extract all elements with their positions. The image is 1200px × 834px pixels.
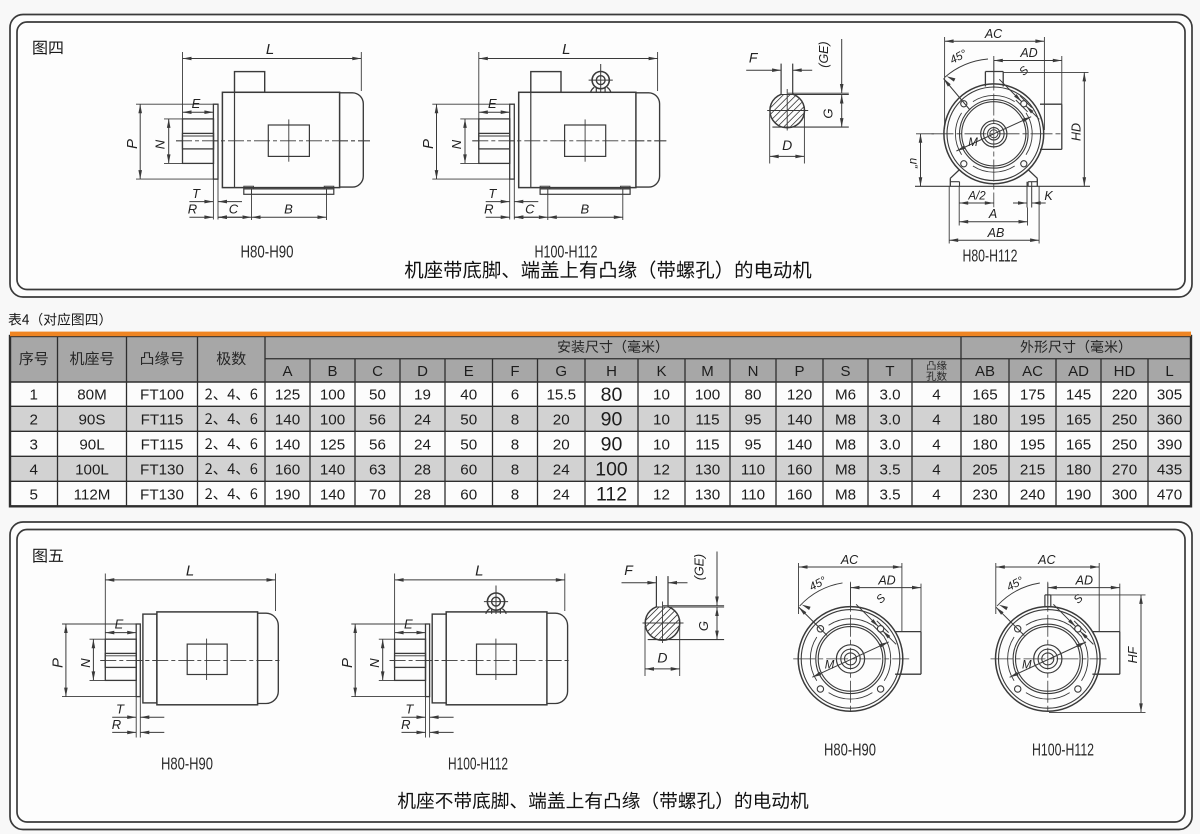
svg-text:110: 110 <box>741 461 765 478</box>
svg-text:115: 115 <box>695 411 719 428</box>
svg-text:115: 115 <box>695 436 719 453</box>
svg-text:AD: AD <box>1075 574 1093 588</box>
svg-text:100: 100 <box>695 387 720 404</box>
svg-text:205: 205 <box>972 461 997 478</box>
svg-text:P: P <box>794 363 804 380</box>
svg-text:M: M <box>968 137 978 149</box>
svg-text:M: M <box>825 659 835 671</box>
svg-text:1: 1 <box>30 387 38 404</box>
svg-text:140: 140 <box>787 436 812 453</box>
svg-text:250: 250 <box>1112 411 1137 428</box>
svg-text:24: 24 <box>414 411 431 428</box>
svg-text:HF: HF <box>1126 645 1140 663</box>
svg-text:215: 215 <box>1020 461 1045 478</box>
svg-text:FT115: FT115 <box>141 436 184 453</box>
svg-text:AC: AC <box>1037 553 1056 567</box>
svg-text:40: 40 <box>460 387 477 404</box>
svg-text:160: 160 <box>787 486 812 503</box>
svg-text:G: G <box>555 363 567 380</box>
svg-text:D: D <box>417 363 428 380</box>
svg-text:24: 24 <box>414 436 431 453</box>
svg-text:2: 2 <box>30 411 38 428</box>
svg-text:8: 8 <box>511 486 519 503</box>
svg-text:112M: 112M <box>74 486 111 503</box>
svg-text:A: A <box>282 363 292 380</box>
svg-text:270: 270 <box>1112 461 1137 478</box>
svg-text:390: 390 <box>1157 436 1182 453</box>
svg-text:B: B <box>327 363 337 380</box>
svg-text:130: 130 <box>695 486 720 503</box>
svg-text:K: K <box>1044 189 1053 203</box>
svg-text:160: 160 <box>275 461 300 478</box>
svg-text:90: 90 <box>601 434 623 456</box>
svg-text:80: 80 <box>745 387 762 404</box>
svg-text:4: 4 <box>932 486 940 503</box>
svg-text:190: 190 <box>1066 486 1091 503</box>
svg-text:3.0: 3.0 <box>879 387 900 404</box>
svg-text:28: 28 <box>414 461 431 478</box>
svg-text:50: 50 <box>460 436 477 453</box>
svg-text:24: 24 <box>553 486 570 503</box>
svg-text:12: 12 <box>653 486 670 503</box>
svg-text:M: M <box>701 363 714 380</box>
svg-text:70: 70 <box>369 486 386 503</box>
svg-text:180: 180 <box>972 436 997 453</box>
svg-text:10: 10 <box>653 387 670 404</box>
svg-text:220: 220 <box>1112 387 1137 404</box>
svg-text:H80-H90: H80-H90 <box>161 754 213 774</box>
svg-text:H80-H90: H80-H90 <box>241 242 294 262</box>
svg-text:63: 63 <box>369 461 386 478</box>
svg-text:C: C <box>372 363 383 380</box>
svg-text:H100-H112: H100-H112 <box>535 242 598 262</box>
svg-text:3: 3 <box>30 436 38 453</box>
svg-text:H100-H112: H100-H112 <box>1032 740 1094 760</box>
svg-text:195: 195 <box>1020 411 1045 428</box>
svg-text:20: 20 <box>553 411 570 428</box>
svg-text:AC: AC <box>1022 363 1043 380</box>
svg-text:28: 28 <box>414 486 431 503</box>
svg-text:120: 120 <box>787 387 812 404</box>
svg-text:19: 19 <box>414 387 431 404</box>
svg-text:AC: AC <box>840 553 859 567</box>
svg-text:190: 190 <box>275 486 300 503</box>
svg-text:H80-H112: H80-H112 <box>963 246 1018 266</box>
svg-text:80M: 80M <box>77 387 107 404</box>
svg-text:6: 6 <box>511 387 519 404</box>
svg-text:140: 140 <box>275 411 300 428</box>
svg-text:140: 140 <box>320 461 345 478</box>
svg-text:195: 195 <box>1020 436 1045 453</box>
svg-text:L: L <box>1165 363 1173 380</box>
svg-text:„n: „n <box>908 158 920 169</box>
svg-text:4: 4 <box>30 461 38 478</box>
svg-text:3.0: 3.0 <box>879 436 900 453</box>
svg-text:24: 24 <box>553 461 570 478</box>
svg-text:175: 175 <box>1020 387 1045 404</box>
svg-text:8: 8 <box>511 461 519 478</box>
svg-text:4: 4 <box>932 387 940 404</box>
svg-text:M8: M8 <box>835 411 856 428</box>
svg-text:12: 12 <box>653 461 670 478</box>
svg-text:240: 240 <box>1020 486 1045 503</box>
svg-text:S: S <box>840 363 850 380</box>
svg-text:M: M <box>1022 660 1032 672</box>
svg-text:165: 165 <box>1066 436 1091 453</box>
svg-text:435: 435 <box>1157 461 1182 478</box>
svg-text:AB: AB <box>975 363 995 380</box>
svg-text:FT130: FT130 <box>140 486 184 503</box>
svg-text:3.0: 3.0 <box>879 411 900 428</box>
svg-text:50: 50 <box>369 387 386 404</box>
svg-text:A: A <box>988 207 997 221</box>
svg-text:100: 100 <box>320 411 345 428</box>
svg-text:3.5: 3.5 <box>879 486 900 503</box>
svg-text:165: 165 <box>1066 411 1091 428</box>
svg-text:3.5: 3.5 <box>879 461 900 478</box>
svg-text:95: 95 <box>745 436 762 453</box>
svg-text:50: 50 <box>460 411 477 428</box>
svg-text:300: 300 <box>1112 486 1137 503</box>
svg-text:FT130: FT130 <box>140 461 184 478</box>
svg-text:4: 4 <box>932 436 940 453</box>
svg-text:95: 95 <box>745 411 762 428</box>
svg-text:140: 140 <box>320 486 345 503</box>
svg-text:A/2: A/2 <box>967 191 986 203</box>
svg-text:360: 360 <box>1157 411 1182 428</box>
svg-text:90S: 90S <box>78 411 105 428</box>
svg-text:FT115: FT115 <box>141 411 184 428</box>
svg-text:AB: AB <box>987 226 1005 240</box>
svg-text:M8: M8 <box>835 486 856 503</box>
svg-text:AD: AD <box>1019 46 1037 60</box>
svg-text:305: 305 <box>1157 387 1182 404</box>
svg-text:8: 8 <box>511 436 519 453</box>
svg-text:140: 140 <box>787 411 812 428</box>
svg-text:470: 470 <box>1157 486 1182 503</box>
svg-text:HD: HD <box>1070 123 1084 141</box>
svg-text:4: 4 <box>932 461 940 478</box>
svg-text:125: 125 <box>320 436 345 453</box>
svg-text:180: 180 <box>1066 461 1091 478</box>
svg-text:E: E <box>464 363 474 380</box>
svg-text:4: 4 <box>932 411 940 428</box>
svg-text:90: 90 <box>601 409 623 431</box>
svg-text:M8: M8 <box>835 461 856 478</box>
svg-text:230: 230 <box>972 486 997 503</box>
svg-text:AD: AD <box>877 574 895 588</box>
svg-text:60: 60 <box>460 461 477 478</box>
svg-text:140: 140 <box>275 436 300 453</box>
svg-text:250: 250 <box>1112 436 1137 453</box>
svg-text:AD: AD <box>1068 363 1089 380</box>
svg-text:M6: M6 <box>835 387 856 404</box>
svg-text:112: 112 <box>596 484 627 506</box>
svg-text:60: 60 <box>460 486 477 503</box>
svg-text:56: 56 <box>369 436 386 453</box>
svg-text:100L: 100L <box>75 461 109 478</box>
svg-text:10: 10 <box>653 411 670 428</box>
svg-text:125: 125 <box>275 387 300 404</box>
svg-text:H100-H112: H100-H112 <box>448 754 508 774</box>
svg-text:80: 80 <box>601 384 623 406</box>
svg-text:T: T <box>885 363 894 380</box>
svg-text:15.5: 15.5 <box>546 387 576 404</box>
svg-text:FT100: FT100 <box>140 387 184 404</box>
svg-text:H: H <box>606 363 617 380</box>
svg-text:M8: M8 <box>835 436 856 453</box>
svg-text:100: 100 <box>320 387 345 404</box>
svg-text:HD: HD <box>1114 363 1136 380</box>
svg-text:145: 145 <box>1066 387 1091 404</box>
svg-text:K: K <box>656 363 666 380</box>
svg-text:10: 10 <box>653 436 670 453</box>
svg-text:180: 180 <box>972 411 997 428</box>
svg-text:160: 160 <box>787 461 812 478</box>
svg-text:8: 8 <box>511 411 519 428</box>
svg-text:AC: AC <box>984 27 1003 41</box>
svg-text:H80-H90: H80-H90 <box>824 740 876 760</box>
svg-text:5: 5 <box>30 486 38 503</box>
svg-text:110: 110 <box>741 486 765 503</box>
svg-text:100: 100 <box>595 459 628 481</box>
svg-text:56: 56 <box>369 411 386 428</box>
svg-text:N: N <box>748 363 759 380</box>
svg-text:20: 20 <box>553 436 570 453</box>
svg-text:90L: 90L <box>79 436 104 453</box>
svg-text:130: 130 <box>695 461 720 478</box>
svg-text:F: F <box>510 363 519 380</box>
svg-text:165: 165 <box>972 387 997 404</box>
